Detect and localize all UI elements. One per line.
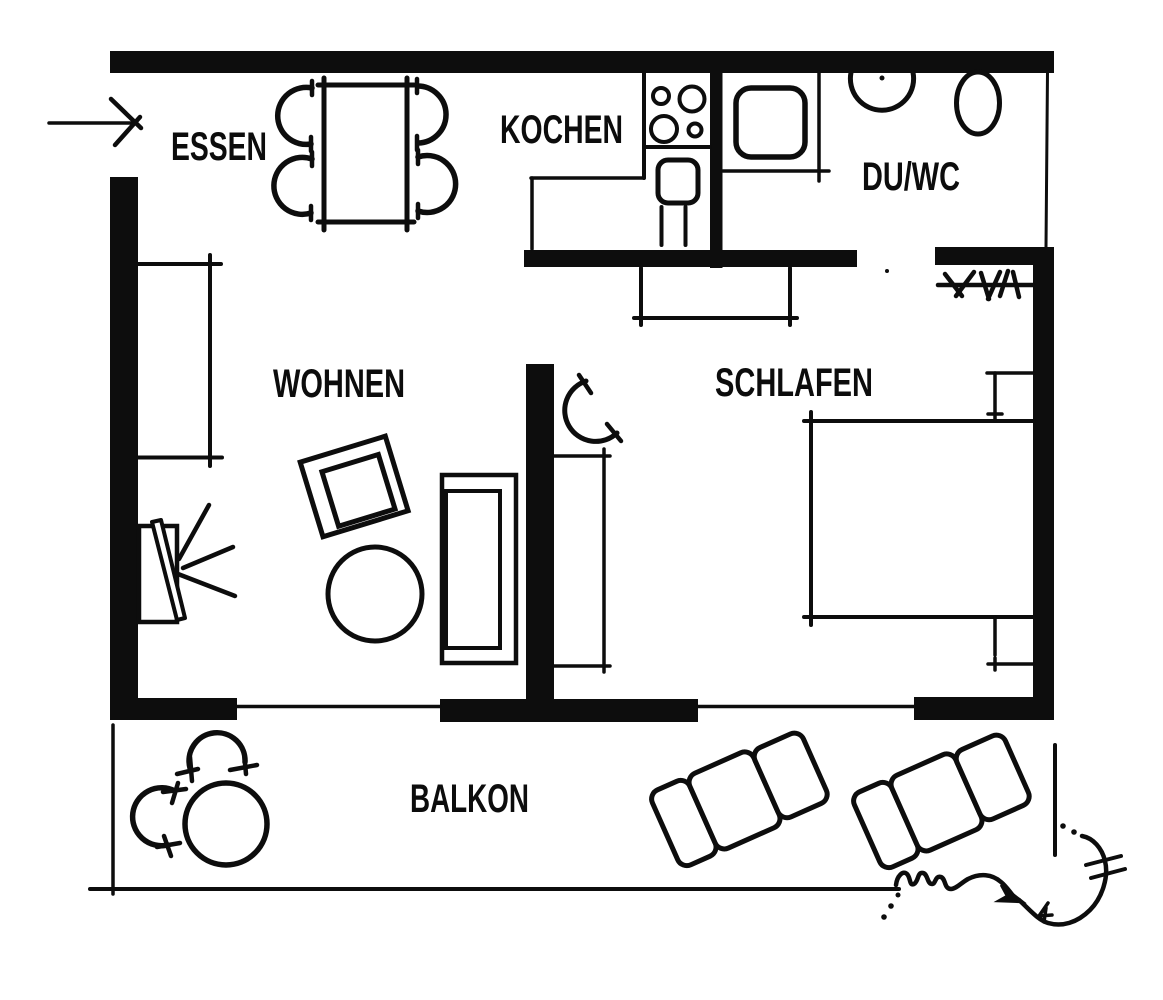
svg-text:DU/WC: DU/WC [862,155,960,199]
svg-text:KOCHEN: KOCHEN [500,108,623,152]
svg-text:ESSEN: ESSEN [171,125,267,169]
svg-text:SCHLAFEN: SCHLAFEN [715,361,873,405]
svg-text:BALKON: BALKON [410,777,529,821]
svg-text:WOHNEN: WOHNEN [273,362,405,406]
